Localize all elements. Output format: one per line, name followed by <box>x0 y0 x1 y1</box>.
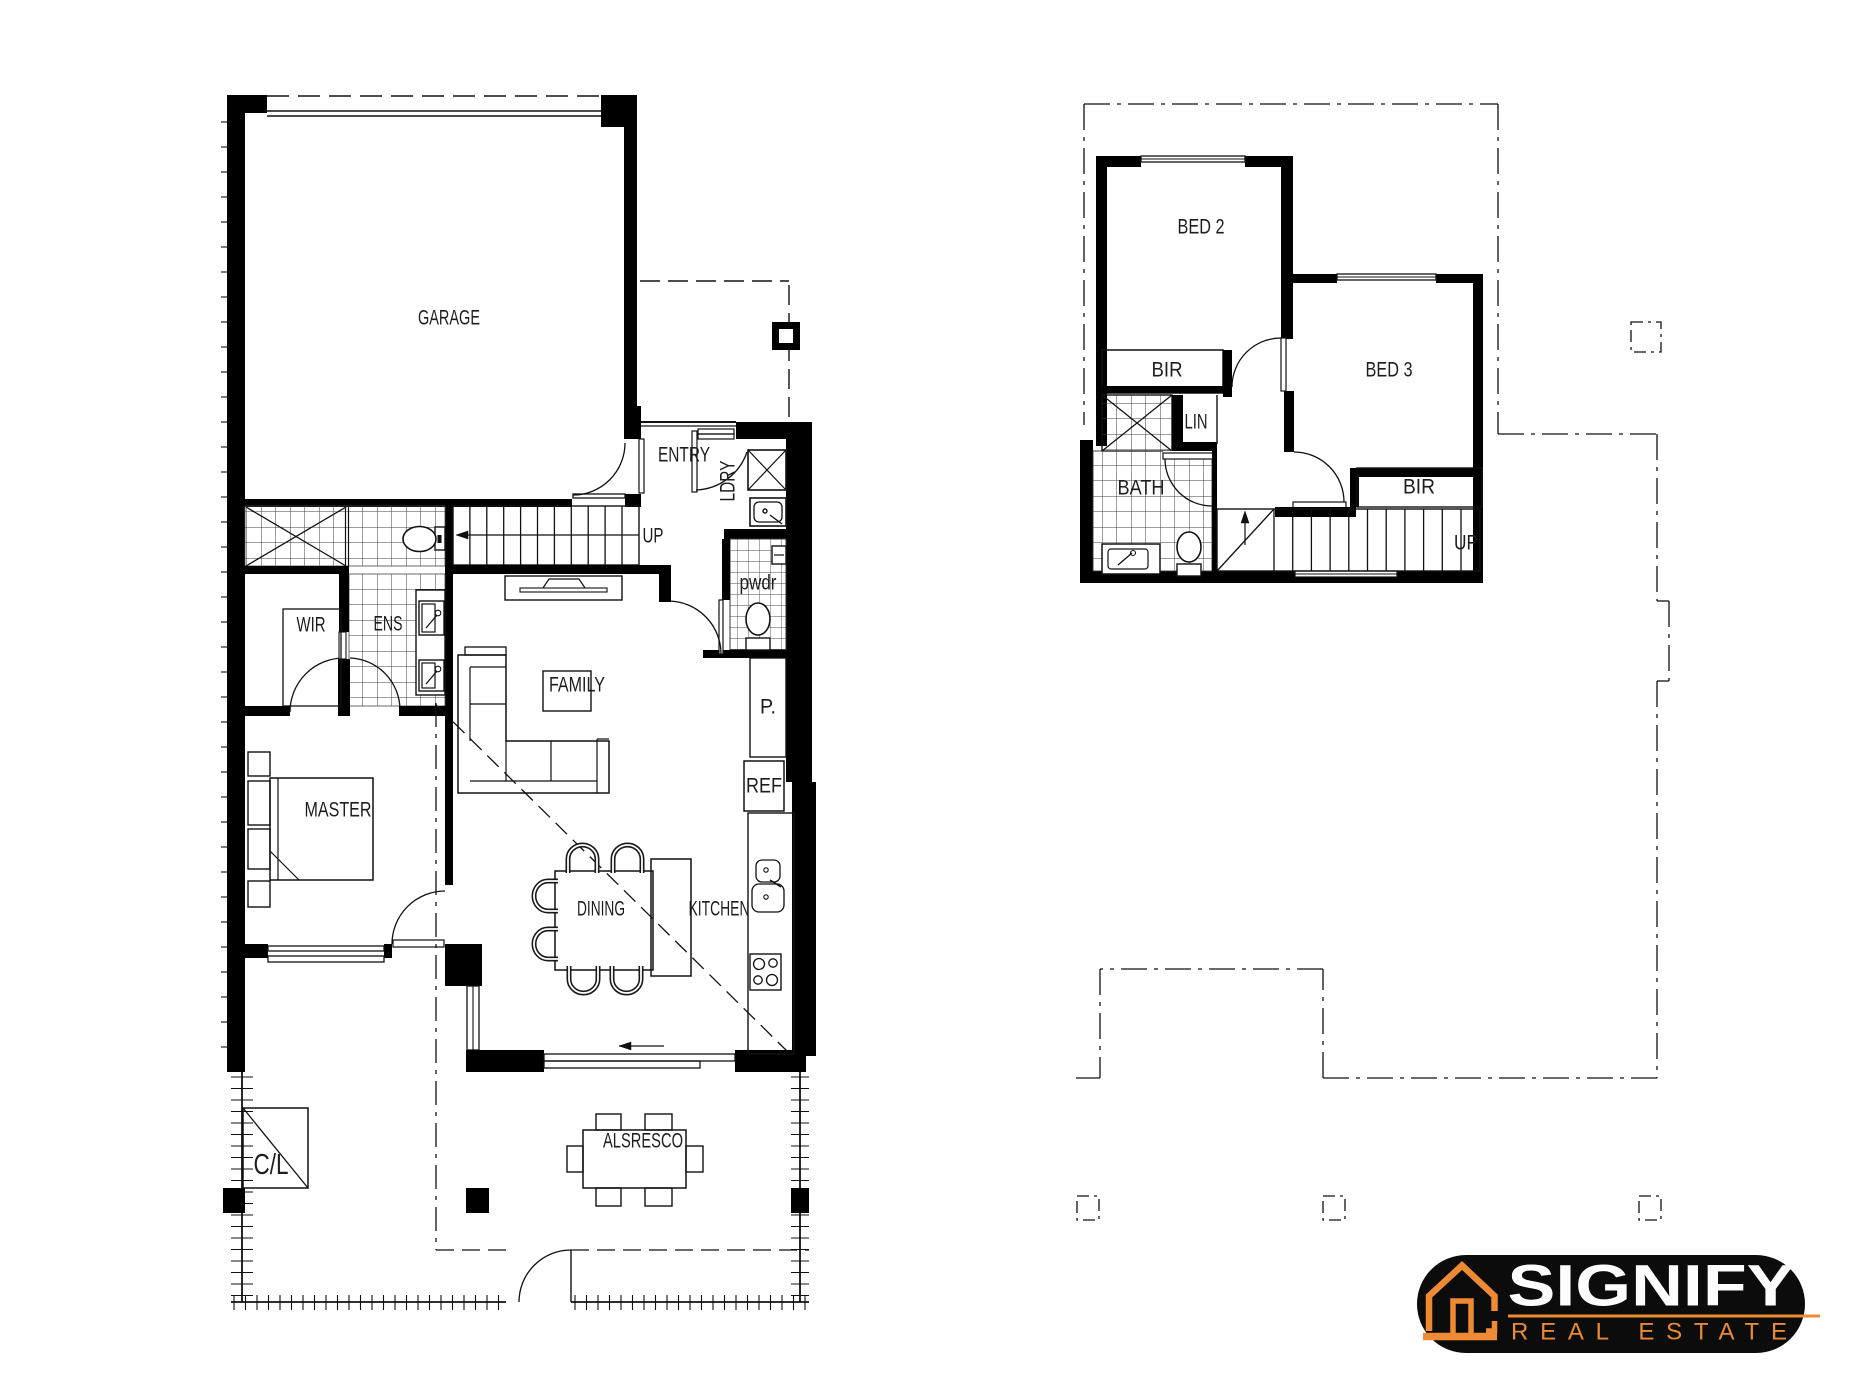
svg-text:BIR: BIR <box>1152 359 1183 382</box>
svg-text:BED 3: BED 3 <box>1366 359 1413 382</box>
svg-text:BED 2: BED 2 <box>1178 216 1225 239</box>
svg-text:GARAGE: GARAGE <box>418 307 480 330</box>
svg-text:MASTER: MASTER <box>305 799 372 822</box>
svg-text:WIR: WIR <box>297 614 326 637</box>
svg-text:REF: REF <box>746 775 782 798</box>
svg-text:UP: UP <box>1454 532 1478 555</box>
svg-text:UP: UP <box>643 525 664 548</box>
svg-text:FAMILY: FAMILY <box>549 674 605 697</box>
svg-text:DINING: DINING <box>577 898 625 921</box>
svg-text:P.: P. <box>760 696 776 719</box>
svg-text:LDRY: LDRY <box>717 461 740 502</box>
svg-text:ALSRESCO: ALSRESCO <box>603 1130 683 1153</box>
svg-text:SIGNIFY: SIGNIFY <box>1508 1254 1795 1319</box>
svg-text:KITCHEN: KITCHEN <box>689 898 750 921</box>
svg-text:ENTRY: ENTRY <box>658 444 710 467</box>
svg-text:REAL ESTATE: REAL ESTATE <box>1511 1319 1787 1346</box>
svg-text:LIN: LIN <box>1185 411 1208 434</box>
svg-text:C/L: C/L <box>254 1149 289 1181</box>
svg-text:BATH: BATH <box>1118 477 1165 500</box>
svg-text:BIR: BIR <box>1403 476 1435 499</box>
svg-text:ENS: ENS <box>374 613 403 636</box>
svg-text:pwdr: pwdr <box>740 572 777 595</box>
